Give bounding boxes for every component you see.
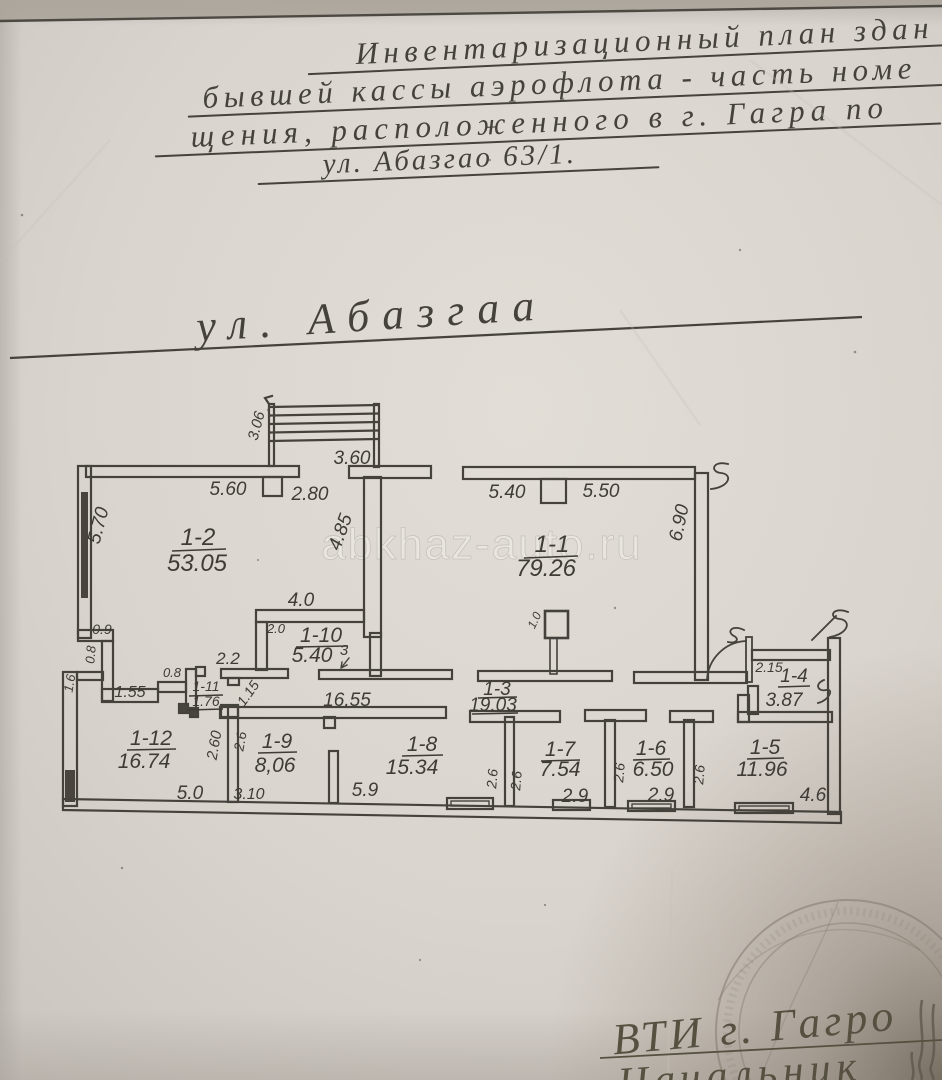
- svg-text:1-12: 1-12: [130, 727, 172, 750]
- svg-text:0.8: 0.8: [163, 665, 182, 680]
- svg-text:0.9: 0.9: [92, 621, 112, 637]
- svg-text:3: 3: [340, 642, 349, 659]
- svg-text:5.50: 5.50: [583, 481, 620, 502]
- svg-text:3.60: 3.60: [334, 448, 371, 469]
- svg-text:2.6: 2.6: [690, 764, 708, 786]
- svg-text:2.6: 2.6: [610, 762, 628, 784]
- svg-text:2.6: 2.6: [507, 770, 525, 792]
- svg-text:5.9: 5.9: [352, 780, 379, 801]
- svg-text:2.80: 2.80: [291, 484, 329, 505]
- svg-text:1-2: 1-2: [181, 524, 216, 551]
- svg-text:15.34: 15.34: [386, 756, 439, 779]
- svg-text:5.40: 5.40: [489, 482, 526, 503]
- svg-text:16.55: 16.55: [323, 690, 371, 711]
- svg-text:3.87: 3.87: [766, 690, 804, 711]
- svg-text:2.0: 2.0: [266, 621, 286, 636]
- svg-text:1-5: 1-5: [750, 736, 781, 759]
- svg-text:3.10: 3.10: [233, 786, 264, 803]
- svg-text:abkhaz-auto.ru: abkhaz-auto.ru: [321, 520, 643, 569]
- svg-text:0.8: 0.8: [82, 644, 99, 664]
- svg-text:6.50: 6.50: [633, 758, 674, 781]
- svg-text:2.15: 2.15: [754, 659, 782, 675]
- svg-text:1.55: 1.55: [114, 684, 145, 701]
- svg-text:2.6: 2.6: [483, 768, 501, 790]
- svg-text:1-8: 1-8: [407, 733, 438, 756]
- svg-text:1-4: 1-4: [780, 666, 807, 687]
- svg-text:4.0: 4.0: [288, 590, 315, 611]
- svg-text:1-9: 1-9: [262, 730, 293, 753]
- svg-text:11.96: 11.96: [737, 758, 788, 781]
- svg-text:1-1: 1-1: [535, 531, 570, 558]
- svg-text:53.05: 53.05: [167, 550, 228, 577]
- svg-text:1-11: 1-11: [193, 678, 220, 694]
- svg-text:2.9: 2.9: [561, 786, 589, 807]
- svg-text:16.74: 16.74: [118, 750, 171, 773]
- svg-text:4.6: 4.6: [800, 785, 827, 806]
- svg-text:1-6: 1-6: [636, 737, 667, 760]
- svg-text:2.2: 2.2: [215, 649, 240, 668]
- svg-text:2.9: 2.9: [647, 785, 675, 806]
- svg-text:5.0: 5.0: [177, 783, 204, 804]
- svg-text:5.60: 5.60: [210, 479, 247, 500]
- svg-text:79.26: 79.26: [516, 555, 577, 582]
- svg-text:8,06: 8,06: [255, 754, 296, 777]
